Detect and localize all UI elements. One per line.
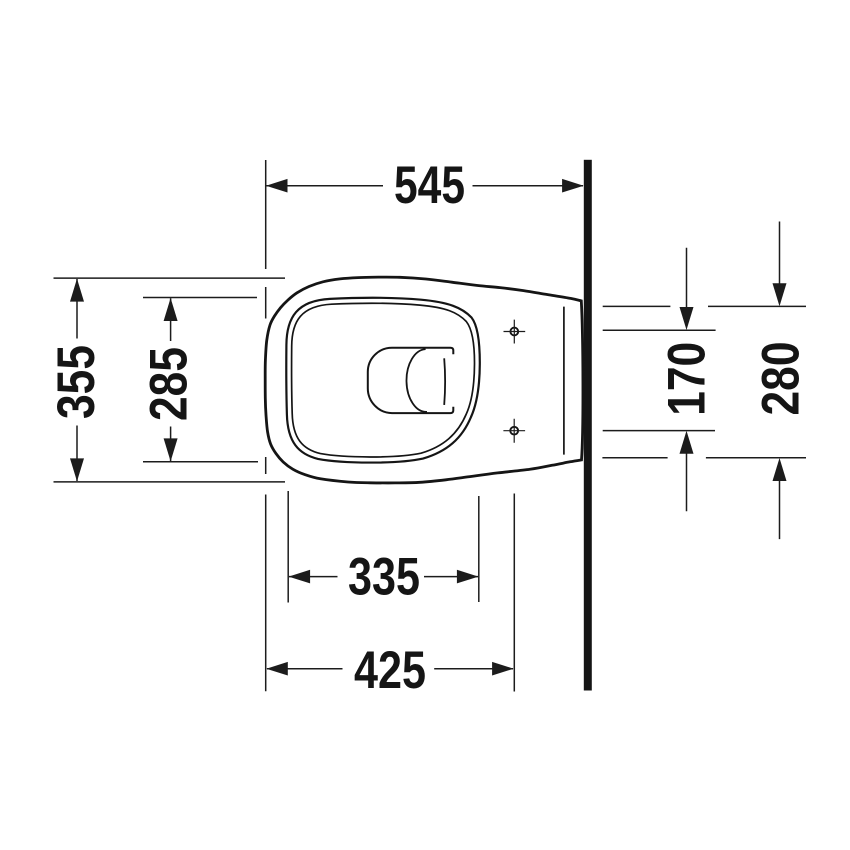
svg-text:335: 335 [348, 547, 420, 606]
svg-text:545: 545 [394, 156, 465, 215]
svg-text:170: 170 [658, 342, 717, 416]
svg-text:425: 425 [354, 641, 426, 700]
svg-text:280: 280 [752, 342, 811, 416]
svg-text:285: 285 [140, 347, 199, 421]
svg-text:355: 355 [47, 345, 106, 419]
